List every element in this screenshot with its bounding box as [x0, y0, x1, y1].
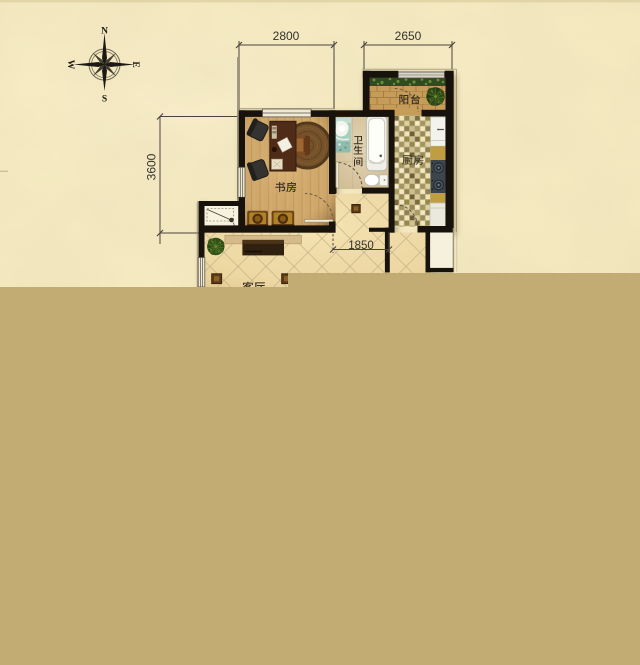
svg-text:N: N: [101, 27, 108, 37]
svg-text:W: W: [65, 60, 75, 70]
svg-text:E: E: [130, 61, 140, 67]
svg-text:2650: 2650: [395, 29, 422, 43]
svg-text:3600: 3600: [145, 153, 159, 180]
svg-text:1850: 1850: [348, 240, 374, 252]
svg-text:2800: 2800: [273, 29, 300, 43]
svg-text:S: S: [102, 95, 107, 105]
